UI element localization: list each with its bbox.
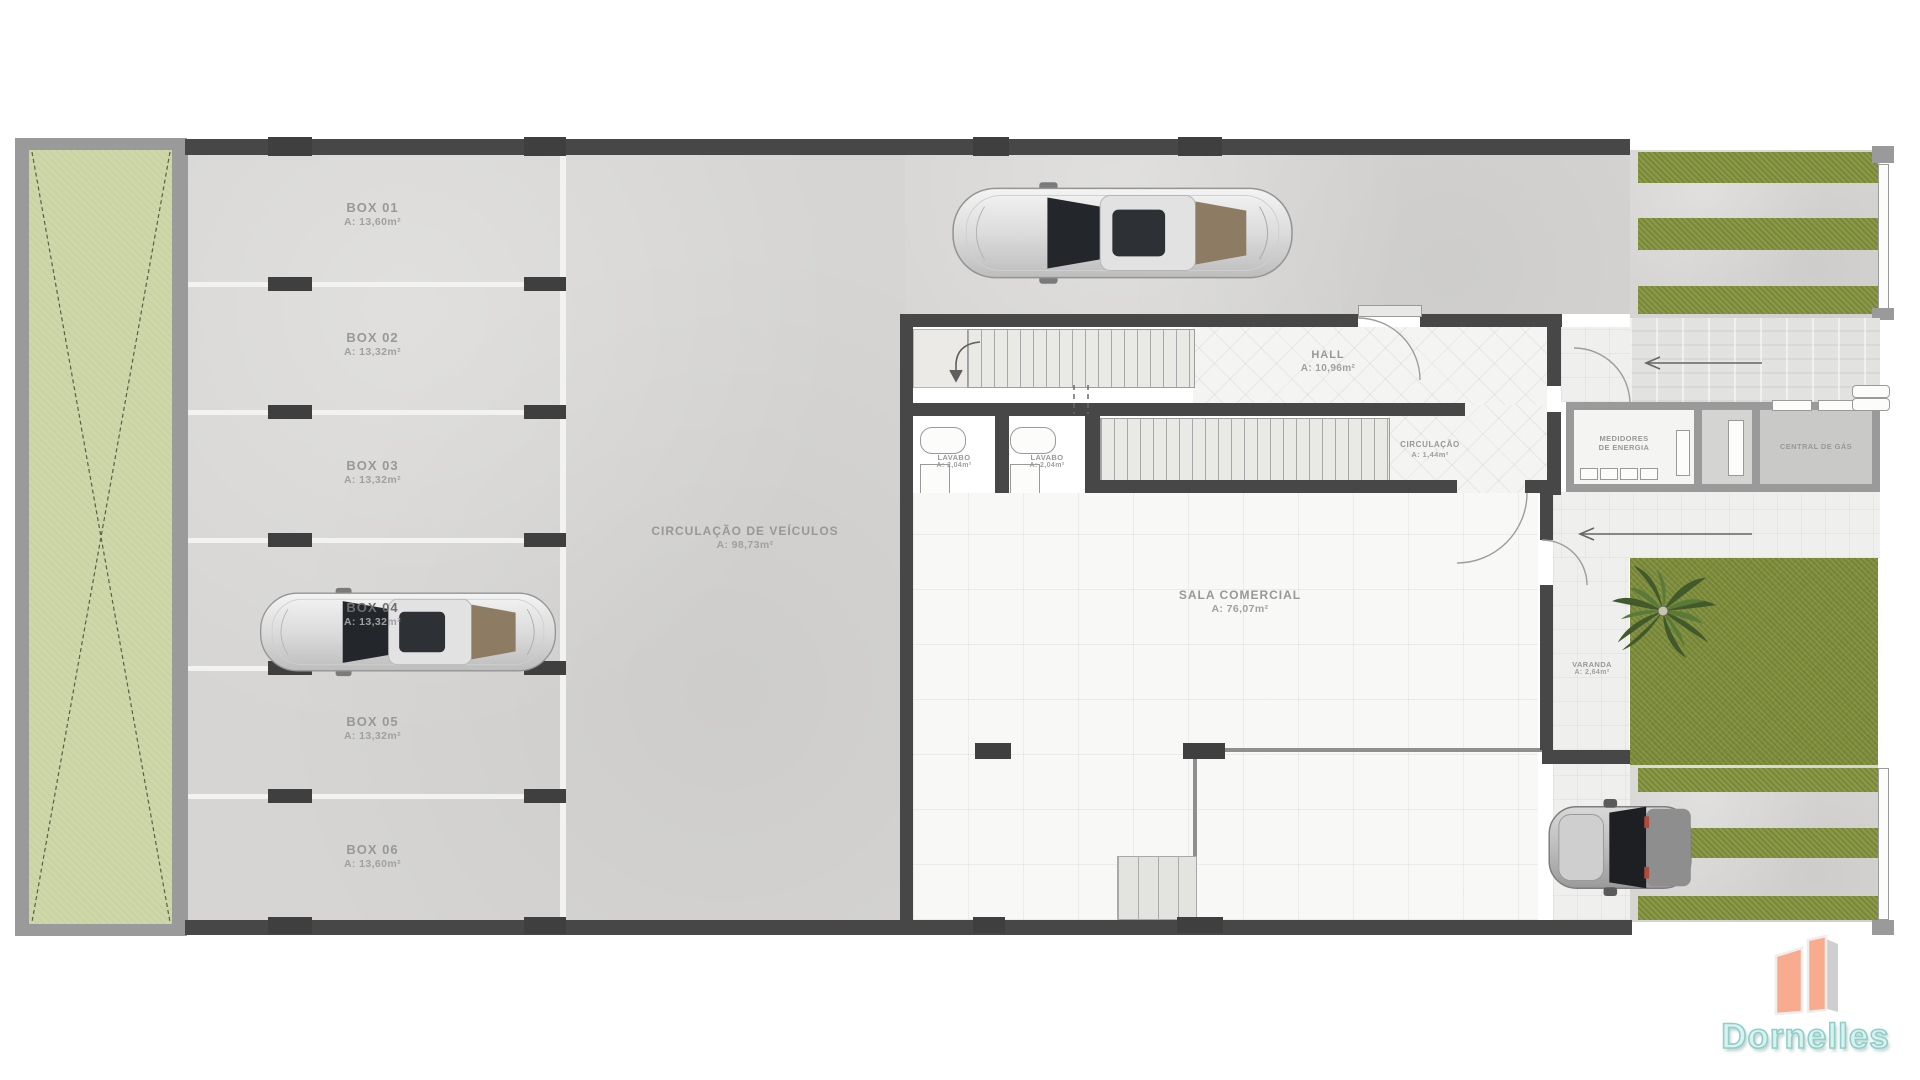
stall-divider bbox=[188, 666, 566, 671]
stall-divider bbox=[188, 538, 566, 543]
grass-stripe bbox=[1638, 152, 1878, 183]
stall-divider bbox=[188, 794, 566, 799]
sala-top-wall bbox=[1100, 480, 1457, 493]
column bbox=[268, 661, 312, 675]
energy-meter bbox=[1580, 468, 1598, 480]
sink-counter bbox=[1010, 427, 1056, 454]
entry-walkway bbox=[1561, 327, 1630, 402]
logo-text: Dornelles bbox=[1688, 1017, 1920, 1057]
column bbox=[524, 661, 566, 675]
room-label-central-gas: CENTRAL DE GÁS bbox=[1760, 442, 1872, 451]
room-label-box-05: BOX 05A: 13,32m² bbox=[250, 714, 495, 743]
wall-end-pier bbox=[1588, 920, 1632, 935]
grass-stripe bbox=[1638, 286, 1878, 314]
column bbox=[524, 277, 566, 291]
gas-cylinder bbox=[1852, 385, 1890, 398]
column bbox=[268, 789, 312, 803]
vent-opening bbox=[1772, 400, 1812, 411]
hall-right-wall bbox=[1547, 314, 1561, 386]
room-label-varanda: VARANDAA: 2,64m² bbox=[1552, 660, 1632, 678]
logo-buildings-icon bbox=[1746, 932, 1866, 1018]
column bbox=[524, 137, 566, 156]
column bbox=[268, 533, 312, 547]
garden-lawn bbox=[1630, 558, 1878, 765]
energy-meter bbox=[1640, 468, 1658, 480]
sink-counter bbox=[920, 427, 966, 454]
column bbox=[1177, 917, 1223, 933]
garage-entry-floor bbox=[1553, 764, 1630, 920]
grass-stripe bbox=[1638, 768, 1878, 792]
grass-stripe bbox=[1638, 828, 1878, 858]
hall-right-wall bbox=[1547, 412, 1561, 496]
sala-top-wall bbox=[1525, 480, 1547, 493]
storefront-glass bbox=[1193, 748, 1197, 860]
varanda-bottom-wall bbox=[1542, 750, 1630, 764]
column bbox=[268, 277, 312, 291]
room-label-box-03: BOX 03A: 13,32m² bbox=[250, 458, 495, 487]
floor-plan: BOX 01A: 13,60m² BOX 02A: 13,32m² BOX 03… bbox=[0, 0, 1920, 1080]
room-label-circulation: CIRCULAÇÃOA: 1,44m² bbox=[1370, 440, 1490, 459]
column bbox=[524, 533, 566, 547]
column bbox=[524, 405, 566, 419]
service-ladder bbox=[1728, 420, 1744, 476]
staircase-upper bbox=[967, 329, 1195, 388]
side-garden-strip bbox=[29, 150, 172, 924]
sala-comercial-floor bbox=[913, 493, 1538, 920]
garage-left-wall bbox=[172, 150, 188, 924]
hall-top-wall bbox=[905, 314, 1358, 327]
gas-cylinder bbox=[1852, 398, 1890, 411]
interior-wall bbox=[905, 403, 1465, 416]
service-corridor bbox=[1702, 402, 1752, 492]
stall-divider bbox=[188, 282, 566, 287]
sala-right-wall bbox=[1540, 493, 1553, 540]
room-label-box-02: BOX 02A: 13,32m² bbox=[250, 330, 495, 359]
grass-stripe bbox=[1638, 218, 1878, 250]
energy-meter bbox=[1620, 468, 1638, 480]
stair-landing bbox=[913, 329, 968, 388]
meter-board bbox=[1676, 430, 1690, 476]
outer-wall-top bbox=[185, 139, 1630, 155]
storefront-glass bbox=[1222, 748, 1542, 752]
room-label-lavabo-1: LAVABOA: 2,04m² bbox=[913, 453, 995, 471]
terrace-steps bbox=[1117, 856, 1197, 920]
column bbox=[268, 405, 312, 419]
stall-divider bbox=[188, 410, 566, 415]
outer-wall-bottom-left bbox=[15, 924, 187, 936]
entry-gate bbox=[1878, 164, 1889, 312]
outer-wall-left bbox=[15, 138, 29, 936]
entry-door bbox=[1358, 305, 1422, 317]
room-label-sala-comercial: SALA COMERCIALA: 76,07m² bbox=[1120, 588, 1360, 616]
column bbox=[1178, 137, 1222, 156]
column bbox=[524, 789, 566, 803]
room-label-vehicle-circulation: CIRCULAÇÃO DE VEÍCULOSA: 98,73m² bbox=[620, 524, 870, 552]
side-walkway bbox=[1561, 492, 1880, 558]
entry-pavement bbox=[1630, 318, 1880, 402]
room-label-hall: HALLA: 10,96m² bbox=[1248, 349, 1408, 375]
driveway-floor-top bbox=[905, 154, 1630, 314]
room-label-medidores: MEDIDORESDE ENERGIA bbox=[1572, 434, 1676, 453]
room-label-box-04: BOX 04A: 13,32m² bbox=[250, 600, 495, 629]
column bbox=[973, 137, 1009, 156]
builder-logo: Dornelles bbox=[1688, 932, 1920, 1072]
room-label-lavabo-2: LAVABOA: 2,04m² bbox=[1009, 453, 1085, 471]
room-label-box-06: BOX 06A: 13,60m² bbox=[250, 842, 495, 871]
energy-meter bbox=[1600, 468, 1618, 480]
column bbox=[975, 743, 1011, 759]
column bbox=[1183, 743, 1225, 759]
room-label-box-01: BOX 01A: 13,60m² bbox=[250, 200, 495, 229]
gate-post bbox=[1872, 146, 1894, 163]
column bbox=[973, 917, 1005, 933]
outer-wall-top-left bbox=[15, 138, 187, 150]
column bbox=[524, 917, 566, 934]
entry-gate bbox=[1878, 768, 1889, 920]
grass-stripe bbox=[1638, 896, 1878, 920]
hall-top-wall bbox=[1420, 314, 1562, 327]
column bbox=[268, 917, 312, 934]
column bbox=[268, 137, 312, 156]
staircase-lower bbox=[1100, 418, 1390, 486]
